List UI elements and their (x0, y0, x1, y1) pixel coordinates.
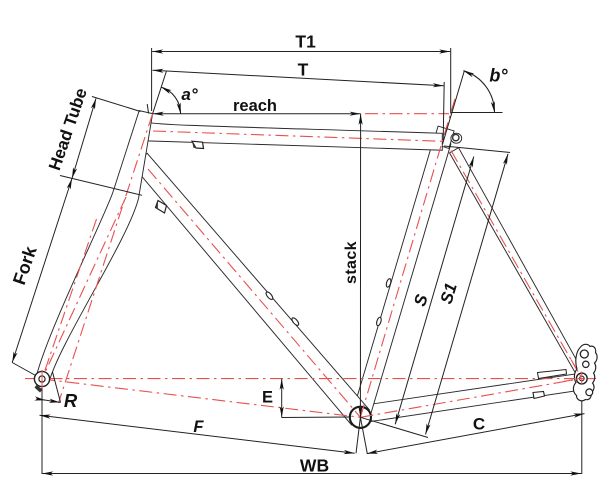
svg-text:R: R (64, 390, 78, 411)
svg-text:E: E (262, 389, 273, 407)
svg-text:C: C (473, 415, 485, 434)
svg-text:stack: stack (343, 241, 360, 284)
svg-text:T1: T1 (295, 32, 316, 52)
svg-text:b°: b° (489, 66, 508, 86)
svg-text:a°: a° (181, 85, 197, 104)
svg-text:F: F (193, 418, 204, 436)
svg-text:WB: WB (300, 456, 329, 476)
svg-text:reach: reach (233, 97, 277, 115)
svg-text:T: T (298, 60, 309, 80)
